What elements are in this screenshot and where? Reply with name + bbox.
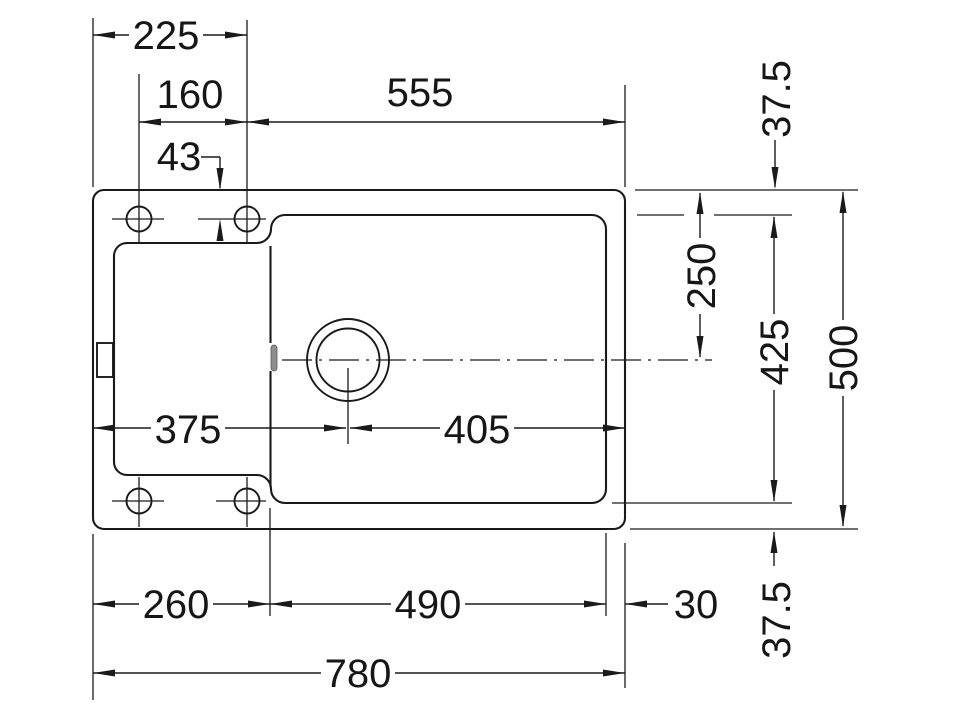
arrowhead-43-bottom bbox=[217, 219, 224, 241]
arrowhead bbox=[248, 601, 270, 608]
dim-label-490: 490 bbox=[395, 583, 462, 627]
dim-label-250: 250 bbox=[680, 243, 724, 310]
dim-label-30: 30 bbox=[674, 583, 719, 627]
arrowhead bbox=[603, 119, 625, 126]
arrowhead bbox=[603, 425, 625, 432]
dim-label-780: 780 bbox=[325, 652, 392, 696]
arrowhead bbox=[771, 216, 778, 238]
arrowhead bbox=[93, 670, 115, 677]
arrowhead bbox=[270, 601, 292, 608]
arrowhead bbox=[771, 480, 778, 502]
arrowheads bbox=[93, 32, 847, 677]
faucet-holes bbox=[112, 196, 266, 527]
arrowhead bbox=[247, 119, 269, 126]
arrowhead-43-top bbox=[217, 168, 224, 190]
dim-label-260: 260 bbox=[143, 583, 210, 627]
dimension-labels: 225 160 555 43 375 405 260 490 30 780 37… bbox=[129, 14, 866, 696]
overflow-slot bbox=[271, 345, 277, 371]
arrowhead bbox=[139, 119, 161, 126]
arrowhead-37-5-top bbox=[772, 167, 779, 189]
arrowhead bbox=[697, 192, 704, 214]
left-rim-notch bbox=[97, 343, 113, 377]
arrowhead bbox=[225, 119, 247, 126]
dim-label-37-5-top: 37.5 bbox=[755, 60, 799, 138]
dimension-lines bbox=[93, 35, 843, 673]
dim-label-375: 375 bbox=[155, 408, 222, 452]
dim-label-555: 555 bbox=[387, 71, 454, 115]
arrowhead bbox=[225, 32, 247, 39]
dim-label-43: 43 bbox=[157, 135, 202, 179]
arrowhead bbox=[603, 670, 625, 677]
sink-technical-drawing: 225 160 555 43 375 405 260 490 30 780 37… bbox=[0, 0, 971, 724]
dim-label-160: 160 bbox=[157, 73, 224, 117]
arrowhead bbox=[584, 601, 606, 608]
arrowhead bbox=[324, 425, 346, 432]
arrowhead bbox=[840, 505, 847, 527]
arrowhead bbox=[697, 336, 704, 358]
dim-label-37-5-bottom: 37.5 bbox=[755, 581, 799, 659]
drawing-svg: 225 160 555 43 375 405 260 490 30 780 37… bbox=[0, 0, 971, 724]
dim-label-500: 500 bbox=[822, 325, 866, 392]
arrowhead bbox=[350, 425, 372, 432]
dim-label-225: 225 bbox=[133, 14, 200, 58]
arrowhead bbox=[93, 32, 115, 39]
arrowhead-37-5-bottom bbox=[771, 531, 778, 553]
dim-label-405: 405 bbox=[444, 408, 511, 452]
dim-label-425: 425 bbox=[753, 319, 797, 386]
arrowhead bbox=[840, 191, 847, 213]
arrowhead bbox=[625, 601, 647, 608]
inner-basin-outline bbox=[114, 215, 606, 503]
arrowhead bbox=[93, 425, 115, 432]
arrowhead bbox=[93, 601, 115, 608]
